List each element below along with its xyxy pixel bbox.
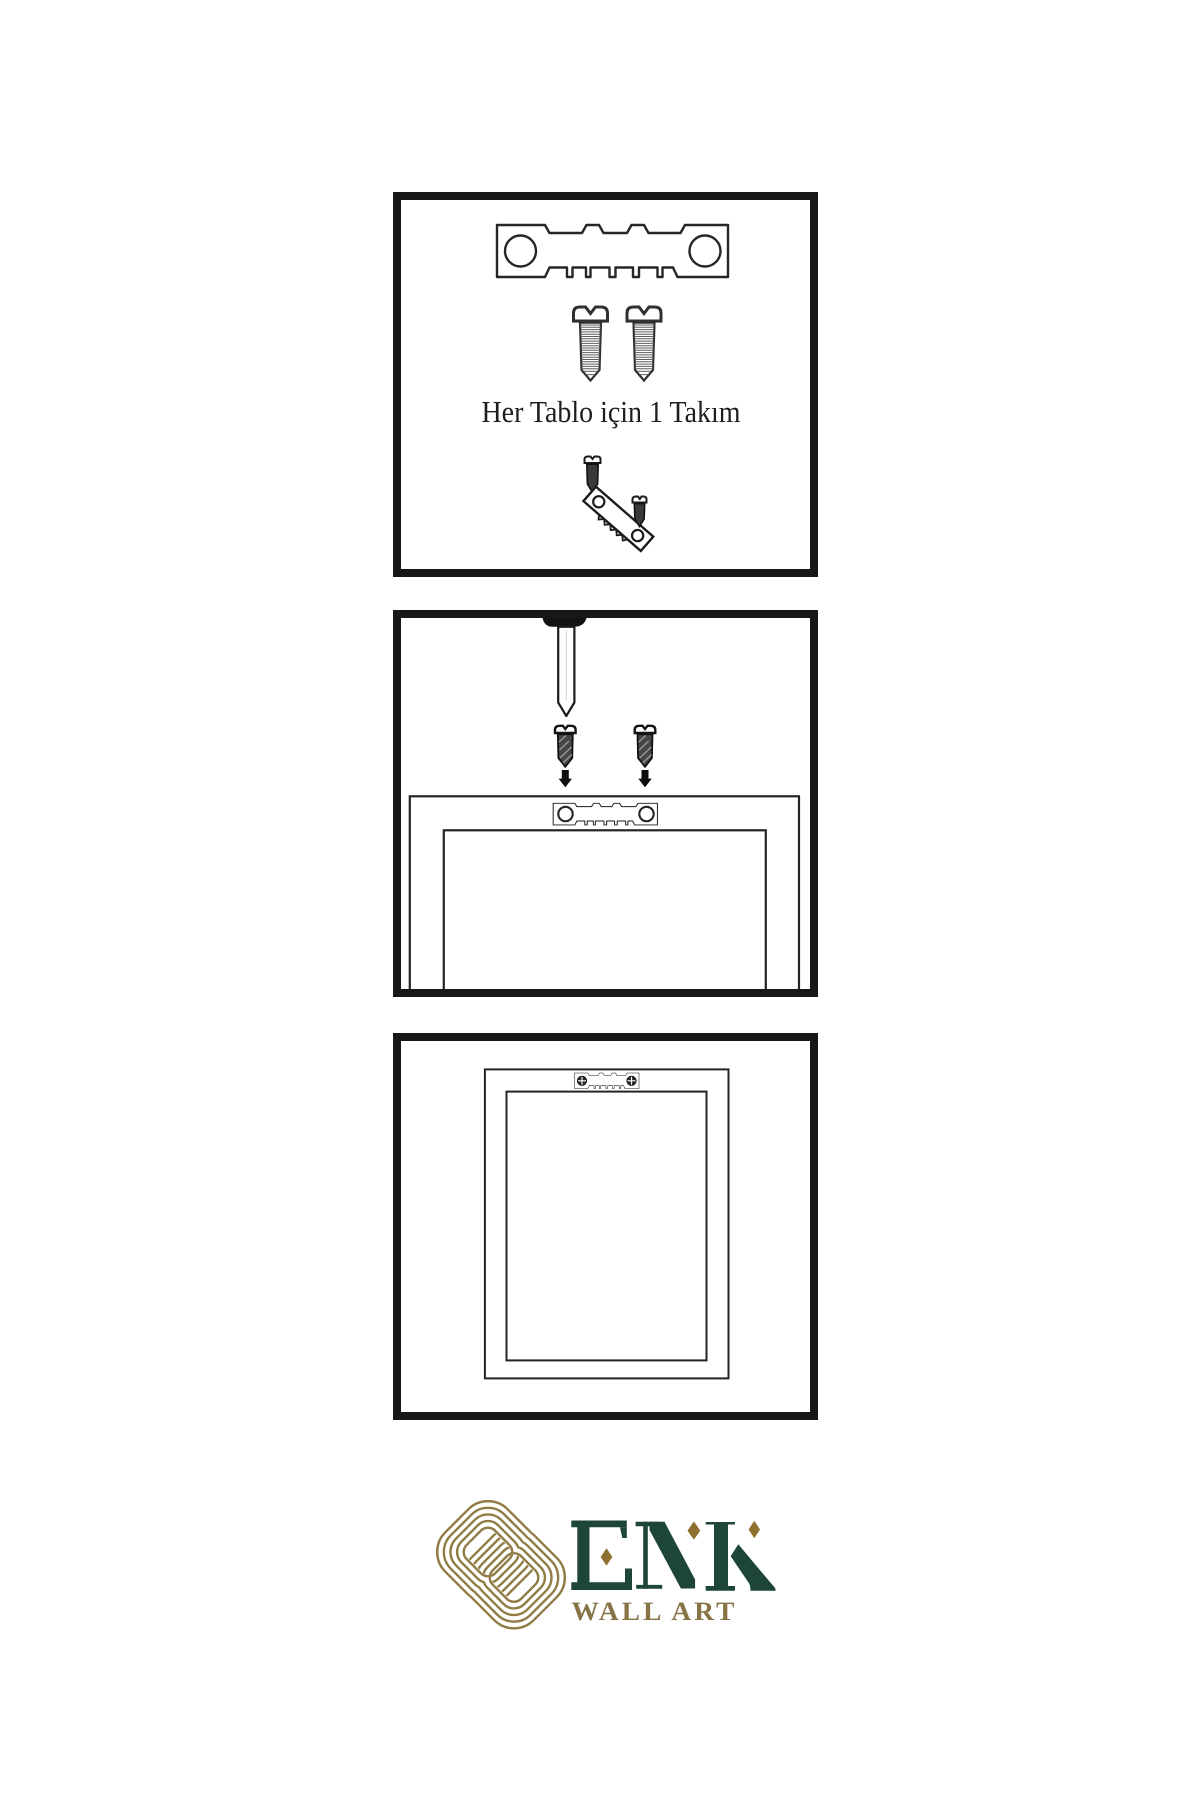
svg-text:WALL ART: WALL ART [572, 1596, 738, 1626]
svg-text:Her Tablo için 1 Takım: Her Tablo için 1 Takım [482, 395, 741, 429]
